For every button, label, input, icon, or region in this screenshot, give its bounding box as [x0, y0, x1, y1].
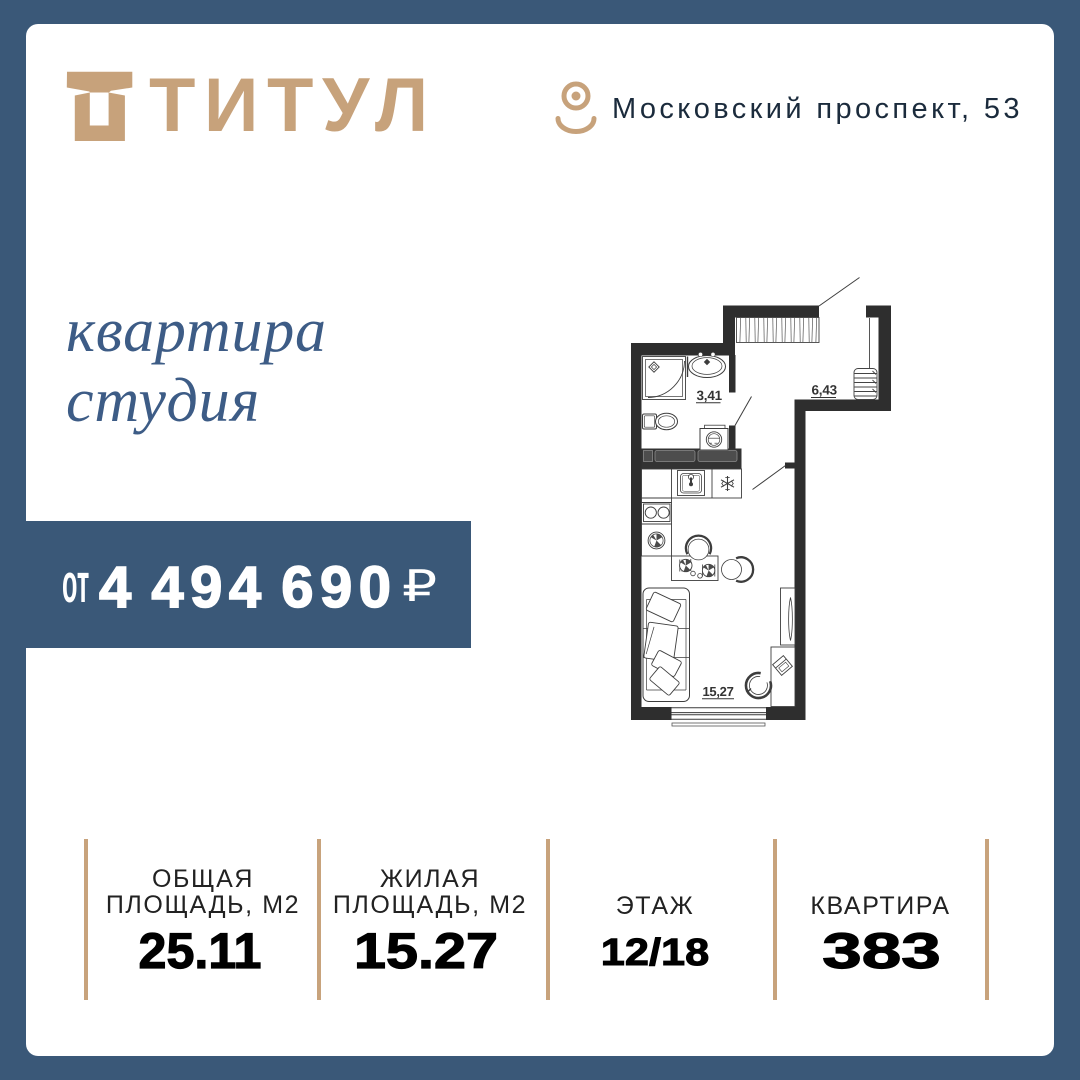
- svg-text:6,43: 6,43: [812, 383, 838, 398]
- svg-text:3,41: 3,41: [697, 388, 723, 403]
- svg-text:15,27: 15,27: [703, 684, 734, 699]
